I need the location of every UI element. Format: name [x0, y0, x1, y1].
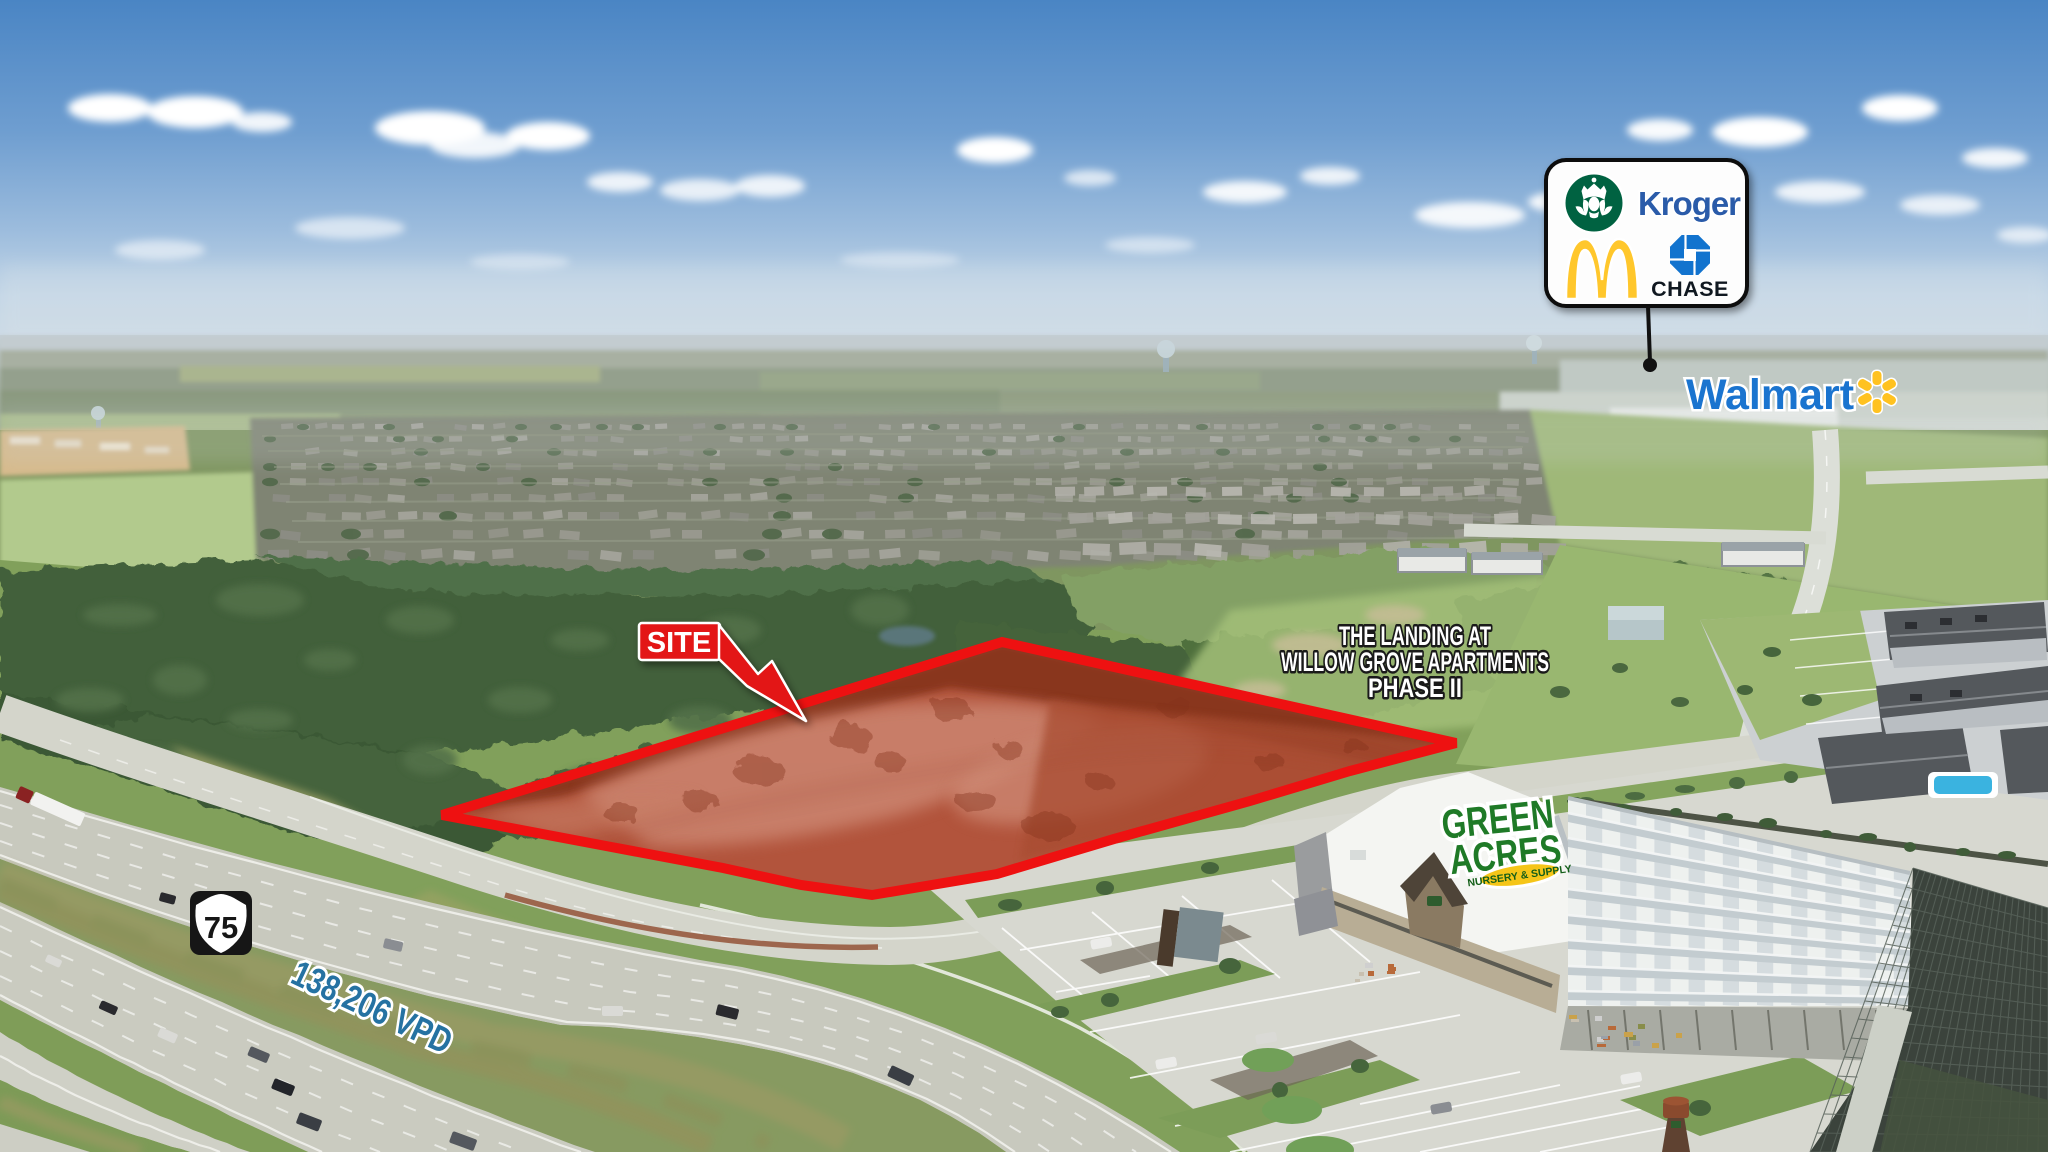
- svg-text:Kroger: Kroger: [1638, 185, 1741, 222]
- svg-text:75: 75: [204, 910, 238, 945]
- svg-text:CHASE: CHASE: [1651, 277, 1729, 301]
- svg-text:Walmart: Walmart: [1686, 371, 1854, 419]
- svg-text:PHASE II: PHASE II: [1368, 673, 1462, 703]
- svg-text:SITE: SITE: [647, 627, 711, 659]
